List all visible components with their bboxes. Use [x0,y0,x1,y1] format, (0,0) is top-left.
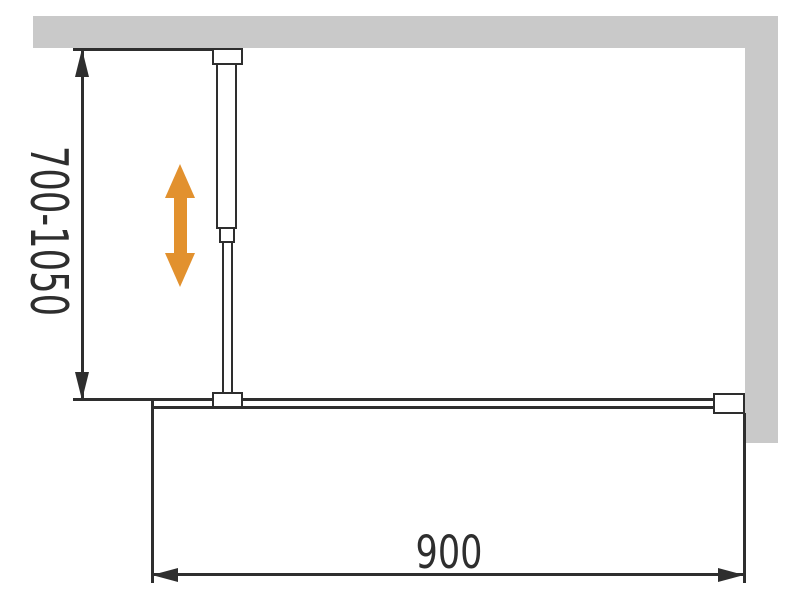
installation-diagram: 700-1050 900 [0,0,800,599]
width-arrowhead-right-icon [718,568,744,582]
glass-panel-top-edge [73,398,713,401]
panel-wall-bracket [713,393,745,415]
wall-top [33,16,778,48]
adjust-arrow-up-icon [165,164,195,198]
height-dimension-line [81,49,84,399]
adjust-arrow-down-icon [165,253,195,287]
height-dimension-label: 700-1050 [23,129,73,333]
support-bar-upper-tube [216,62,238,229]
width-extension-line-left [151,399,154,583]
width-arrowhead-left-icon [152,568,178,582]
height-extension-line-top [73,48,212,51]
support-bar-panel-bracket [212,392,243,408]
support-bar-wall-mount [212,48,243,65]
adjust-arrow-shaft [174,196,187,255]
support-bar-lower-tube [222,241,233,394]
width-dimension-label: 900 [371,528,527,578]
wall-right [745,48,778,443]
height-arrowhead-down-icon [75,372,89,400]
width-extension-line-right [743,413,746,583]
height-arrowhead-up-icon [75,49,89,77]
